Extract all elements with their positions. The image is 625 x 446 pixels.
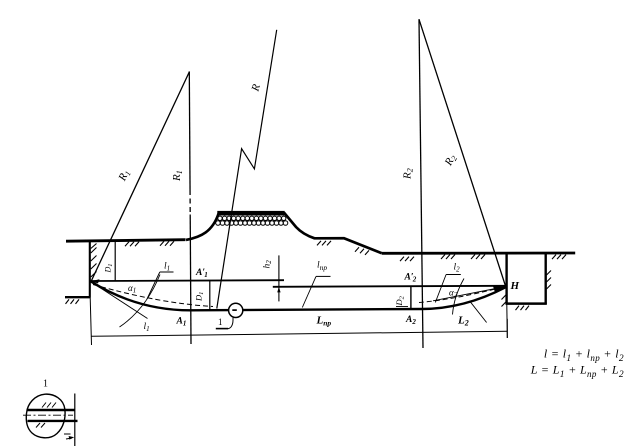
- svg-text:H: H: [510, 280, 520, 292]
- svg-text:1: 1: [218, 317, 223, 327]
- svg-text:lпр: lпр: [317, 261, 327, 273]
- svg-text:h2: h2: [263, 260, 274, 269]
- svg-text:1: 1: [43, 379, 48, 390]
